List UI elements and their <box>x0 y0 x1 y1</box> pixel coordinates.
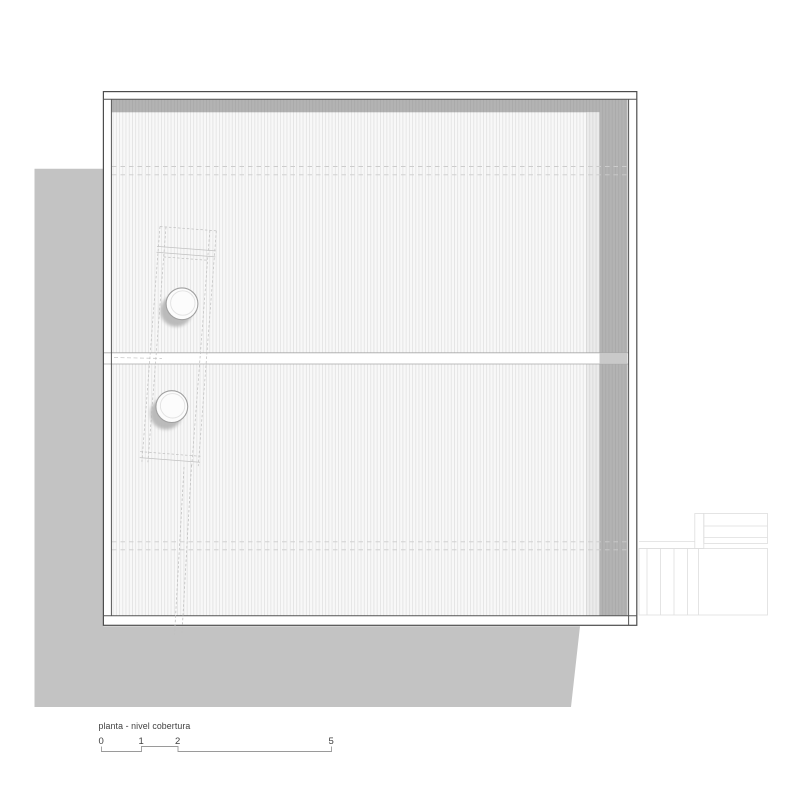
svg-text:planta - nivel cobertura: planta - nivel cobertura <box>99 721 191 731</box>
svg-text:5: 5 <box>329 736 334 747</box>
svg-text:2: 2 <box>175 736 180 747</box>
svg-text:1: 1 <box>139 736 144 747</box>
svg-text:0: 0 <box>99 736 104 747</box>
